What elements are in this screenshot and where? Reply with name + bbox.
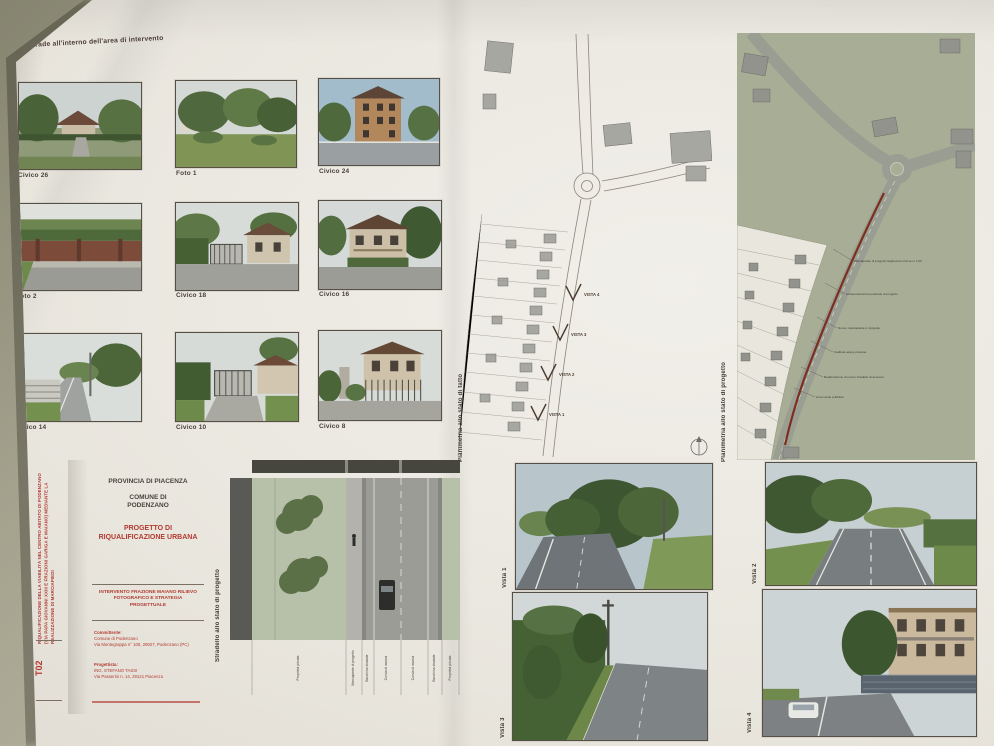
sheet-number: T02	[34, 648, 60, 688]
photo-label: Civico 26	[18, 172, 48, 179]
photo-label: Civico 8	[319, 423, 346, 430]
photo-vista-3	[512, 592, 708, 741]
annotation: Caditoie acque piovane	[834, 350, 867, 354]
photo-civico-24	[318, 78, 440, 166]
photographed-poster-scene: Strade all'interno dell'area di interven…	[0, 0, 994, 746]
north-compass-icon	[691, 436, 707, 455]
dark-edge-block	[230, 478, 252, 640]
annotation: Nuovo marciapiede in progetto	[838, 326, 880, 330]
zone-label: Corsia di marcia	[411, 656, 415, 681]
person-figure	[352, 534, 356, 546]
stradello-caption: Stradello allo stato di progetto	[215, 554, 221, 662]
photo-vista-2	[765, 462, 977, 586]
buildings-existing	[480, 41, 712, 431]
annotation: Attraversamento pedonale di progetto	[846, 292, 898, 296]
photo-foto-2-art	[17, 204, 141, 290]
footer-red-line	[92, 701, 200, 703]
photo-civico-10	[175, 332, 299, 422]
progettista-address: Via Passerini n. 14, 29121 Piacenza	[94, 674, 163, 679]
photo-vista-2-art	[766, 463, 976, 585]
zone-label: Banchina stradale	[432, 654, 436, 681]
photo-label: Civico 16	[319, 291, 349, 298]
vista-marker-label: VISTA 2	[559, 372, 575, 377]
annotation: Marciapiede di progetto larghezza minima…	[854, 259, 922, 263]
vista-1-label: Vista 1	[502, 550, 508, 588]
poster-title: Strade all'interno dell'area di interven…	[28, 30, 258, 49]
roads-existing	[543, 34, 710, 457]
sidewalk-band	[346, 478, 362, 640]
stradello-drawing: Proprietà privata Marciapiede di progett…	[228, 460, 460, 705]
vista-2-label: Vista 2	[752, 546, 758, 584]
photo-foto-1	[175, 80, 297, 168]
committente-name: Comune di Podenzano	[94, 636, 138, 641]
plan-fatto-caption: Planimetria allo stato di fatto	[458, 366, 464, 462]
project-object-side-text: RIQUALIFICAZIONE DELLA VIABILITÀ NEL CEN…	[37, 468, 64, 644]
zone-label: Proprietà privata	[296, 655, 300, 680]
photo-civico-10-art	[176, 333, 298, 421]
section-elevation-band	[252, 460, 460, 473]
car	[379, 580, 395, 610]
photo-civico-16	[318, 200, 442, 290]
vista-marker-label: VISTA 1	[549, 412, 565, 417]
roundabout-island	[891, 163, 904, 176]
photo-civico-18	[175, 202, 299, 291]
vista-3-label: Vista 3	[500, 700, 506, 738]
divider	[36, 700, 62, 701]
photo-civico-8	[318, 330, 442, 421]
photo-civico-14-art	[17, 334, 141, 421]
divider	[36, 640, 62, 641]
vista-arrows	[531, 284, 581, 420]
plan-stato-di-fatto: VISTA 4 VISTA 3 VISTA 2 VISTA 1	[452, 28, 712, 460]
committente-label: Committente:	[94, 630, 122, 635]
photo-vista-3-art	[513, 593, 707, 740]
progettista-name: ING. STEFANO TASSI	[94, 668, 137, 673]
provincia-label: PROVINCIA DI PIACENZA	[90, 478, 206, 485]
photo-vista-1-art	[516, 464, 712, 589]
project-title: PROGETTO DI RIQUALIFICAZIONE URBANA	[98, 524, 198, 542]
vista-4-label: Vista 4	[747, 695, 753, 733]
fold-shadow	[68, 460, 88, 714]
zone-label: Corsia di marcia	[384, 656, 388, 681]
photo-label: Civico 24	[319, 168, 349, 175]
comune-label: COMUNE DI PODENZANO	[113, 494, 183, 511]
plan-progetto-caption: Planimetria allo stato di progetto	[721, 350, 727, 462]
divider	[92, 620, 204, 621]
verge	[442, 478, 460, 640]
vista-marker-labels: VISTA 4 VISTA 3 VISTA 2 VISTA 1	[549, 292, 600, 417]
intervention-title: INTERVENTO FRAZIONE MAIANO RILIEVO FOTOG…	[96, 590, 200, 609]
photo-civico-26	[18, 82, 142, 170]
zone-boundary-lines	[252, 640, 459, 695]
zone-label: Banchina stradale	[365, 654, 369, 681]
annotation: Realizzazione di nuovo stradello di acce…	[824, 375, 884, 379]
progettista-label: Progettista:	[94, 662, 118, 667]
photo-label: Civico 10	[176, 424, 206, 431]
parcel-lines	[458, 214, 568, 456]
photo-label: Foto 1	[176, 170, 197, 177]
vista-marker-label: VISTA 3	[571, 332, 587, 337]
divider	[92, 584, 204, 585]
photo-vista-4	[762, 589, 977, 737]
photo-civico-8-art	[319, 331, 441, 420]
photo-civico-24-art	[319, 79, 439, 165]
annotation: Area verde pubblica	[816, 395, 844, 399]
plan-stato-di-progetto: Marciapiede di progetto larghezza minima…	[737, 33, 975, 460]
committente-address: Via Montegrappa n° 100, 29027, Podenzano…	[94, 642, 189, 647]
photo-civico-16-art	[319, 201, 441, 289]
photo-foto-2	[16, 203, 142, 291]
photo-vista-4-art	[763, 590, 976, 736]
zone-label: Marciapiede di progetto	[351, 650, 355, 686]
photo-civico-18-art	[176, 203, 298, 290]
photo-foto-1-art	[176, 81, 296, 167]
photo-civico-26-art	[19, 83, 141, 169]
photo-label: Civico 18	[176, 292, 206, 299]
vista-marker-label: VISTA 4	[584, 292, 600, 297]
photo-vista-1	[515, 463, 713, 590]
poster-sheet: Strade all'interno dell'area di interven…	[0, 0, 994, 746]
photo-civico-14	[16, 333, 142, 422]
zone-label: Proprietà privata	[448, 655, 452, 680]
